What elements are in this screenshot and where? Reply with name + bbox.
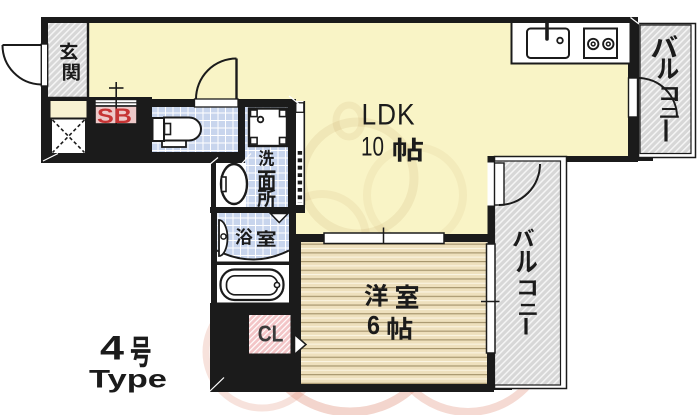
svg-text:SB: SB [97,105,132,128]
svg-text:10: 10 [361,132,384,162]
svg-text:Type: Type [89,366,167,394]
svg-text:LDK: LDK [362,99,416,132]
svg-text:4: 4 [100,330,124,368]
svg-text:CL: CL [258,320,284,346]
svg-text:6: 6 [367,312,380,340]
